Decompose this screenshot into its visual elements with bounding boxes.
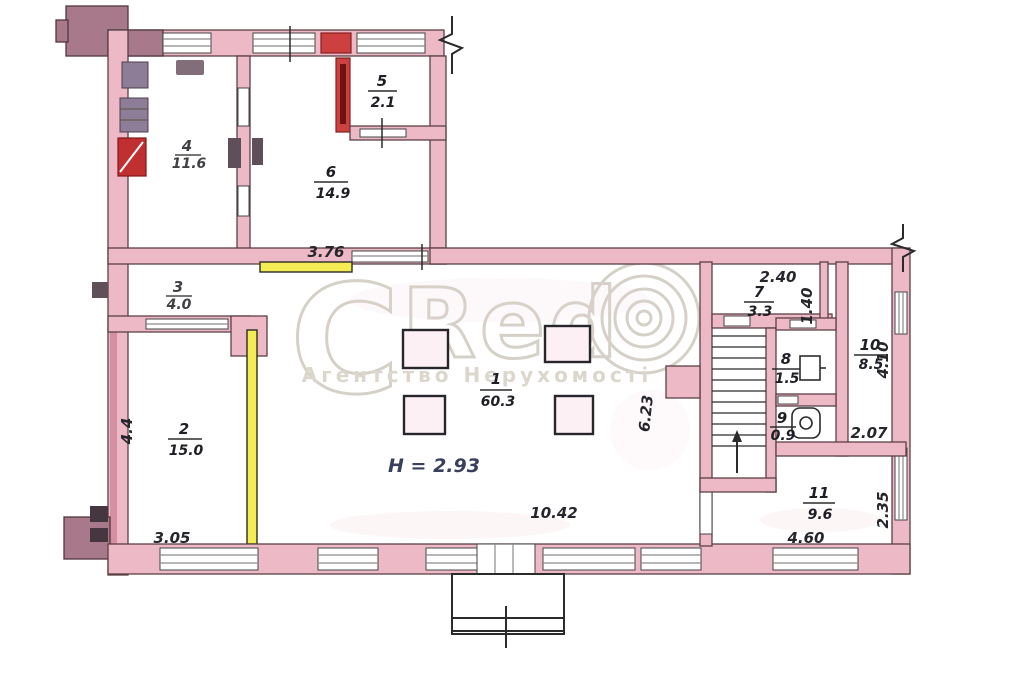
- sink-icon: [800, 356, 826, 380]
- red-highlight-top-wall: [321, 33, 351, 53]
- svg-text:60.3: 60.3: [481, 394, 516, 410]
- svg-text:3.3: 3.3: [748, 304, 773, 320]
- svg-text:2: 2: [179, 420, 189, 438]
- dim-room10-height: 4.10: [874, 341, 892, 379]
- red-highlight-room5-wall: [336, 58, 350, 132]
- dim-room10-width: 2.07: [850, 424, 888, 442]
- svg-text:11.6: 11.6: [172, 156, 207, 172]
- svg-text:3: 3: [173, 278, 183, 296]
- dim-wing-wall: 3.76: [307, 243, 344, 261]
- floor-plan-drawing: C Red Агентство Нерухомості: [0, 0, 1024, 683]
- svg-text:0.9: 0.9: [771, 428, 796, 444]
- pillar: [404, 396, 445, 434]
- svg-text:15.0: 15.0: [169, 443, 204, 459]
- wall-mark: [176, 60, 204, 75]
- svg-text:5: 5: [377, 72, 387, 90]
- dim-room7-width: 2.40: [759, 268, 796, 286]
- yellow-wall-vertical: [247, 330, 257, 544]
- furniture-symbol: [122, 62, 148, 88]
- opening-room3-bottom: [146, 319, 228, 329]
- window-top-2: [253, 33, 315, 53]
- room-label-5: 5 2.1: [368, 72, 397, 111]
- svg-text:2.1: 2.1: [371, 95, 396, 111]
- stove-symbol: [118, 138, 146, 176]
- stair-direction-arrow-icon: [732, 430, 742, 473]
- window-room5: [360, 118, 406, 148]
- svg-text:9.6: 9.6: [808, 507, 833, 523]
- dim-left-wall: 4.4: [118, 418, 136, 446]
- furniture-symbol: [252, 138, 263, 165]
- svg-text:8: 8: [781, 350, 791, 368]
- window-top-3: [357, 33, 425, 53]
- radiator-symbol: [90, 528, 108, 542]
- wall-niche: [666, 366, 700, 398]
- door-opening-room9: [778, 396, 798, 404]
- room-label-3: 3 4.0: [166, 278, 192, 313]
- pillar: [403, 330, 448, 368]
- svg-text:6: 6: [326, 163, 336, 181]
- radiator-symbol: [90, 506, 108, 522]
- chimney-notch: [56, 20, 68, 42]
- svg-text:4: 4: [181, 137, 192, 155]
- watermark-subtitle: Агентство Нерухомості: [302, 363, 652, 387]
- svg-text:11: 11: [809, 484, 830, 502]
- toilet-icon: [792, 408, 820, 438]
- radiator-symbol: [92, 282, 108, 298]
- furniture-symbol: [120, 98, 148, 132]
- window-bottom-3: [426, 548, 478, 570]
- window-bottom-4: [543, 548, 635, 570]
- pillar: [555, 396, 593, 434]
- pillar: [545, 326, 590, 362]
- svg-text:1: 1: [491, 370, 501, 388]
- door-opening-room11: [700, 492, 712, 534]
- dim-niche-height: 1.40: [798, 287, 816, 324]
- window-bottom-1: [160, 548, 258, 570]
- dim-hall-width: 10.42: [530, 504, 577, 522]
- dim-corridor-height: 6.23: [635, 394, 657, 433]
- staircase: [712, 336, 766, 446]
- entrance-door: [477, 544, 535, 574]
- dim-room11-height: 2.35: [874, 491, 892, 528]
- entrance-porch: [452, 574, 564, 648]
- window-top-1: [163, 33, 211, 53]
- window-right-1: [895, 292, 907, 334]
- svg-text:1.5: 1.5: [775, 371, 800, 387]
- door-opening-room3: [238, 186, 249, 216]
- svg-text:4.0: 4.0: [166, 297, 192, 313]
- room-label-2: 2 15.0: [168, 420, 204, 459]
- svg-text:14.9: 14.9: [316, 186, 351, 202]
- svg-text:9: 9: [777, 409, 787, 427]
- window-right-2: [895, 448, 907, 520]
- window-bottom-6: [773, 548, 858, 570]
- watermark-letter-c: C: [290, 254, 400, 428]
- room-label-6: 6 14.9: [314, 163, 351, 202]
- room-label-4: 4 11.6: [172, 137, 207, 172]
- dim-room11-width: 4.60: [786, 529, 824, 547]
- room-label-7: 7 3.3: [744, 283, 774, 320]
- dim-room2-width: 3.05: [153, 529, 190, 547]
- door-opening-room4: [238, 88, 249, 126]
- floor-plan-page: C Red Агентство Нерухомості: [0, 0, 1024, 683]
- window-bottom-5: [641, 548, 701, 570]
- yellow-wall-horizontal: [260, 262, 352, 272]
- ceiling-height-note: H = 2.93: [388, 455, 480, 477]
- furniture-symbol: [228, 138, 241, 168]
- door-opening-room7: [724, 316, 750, 326]
- window-bottom-2: [318, 548, 378, 570]
- room-label-11: 11 9.6: [803, 484, 835, 523]
